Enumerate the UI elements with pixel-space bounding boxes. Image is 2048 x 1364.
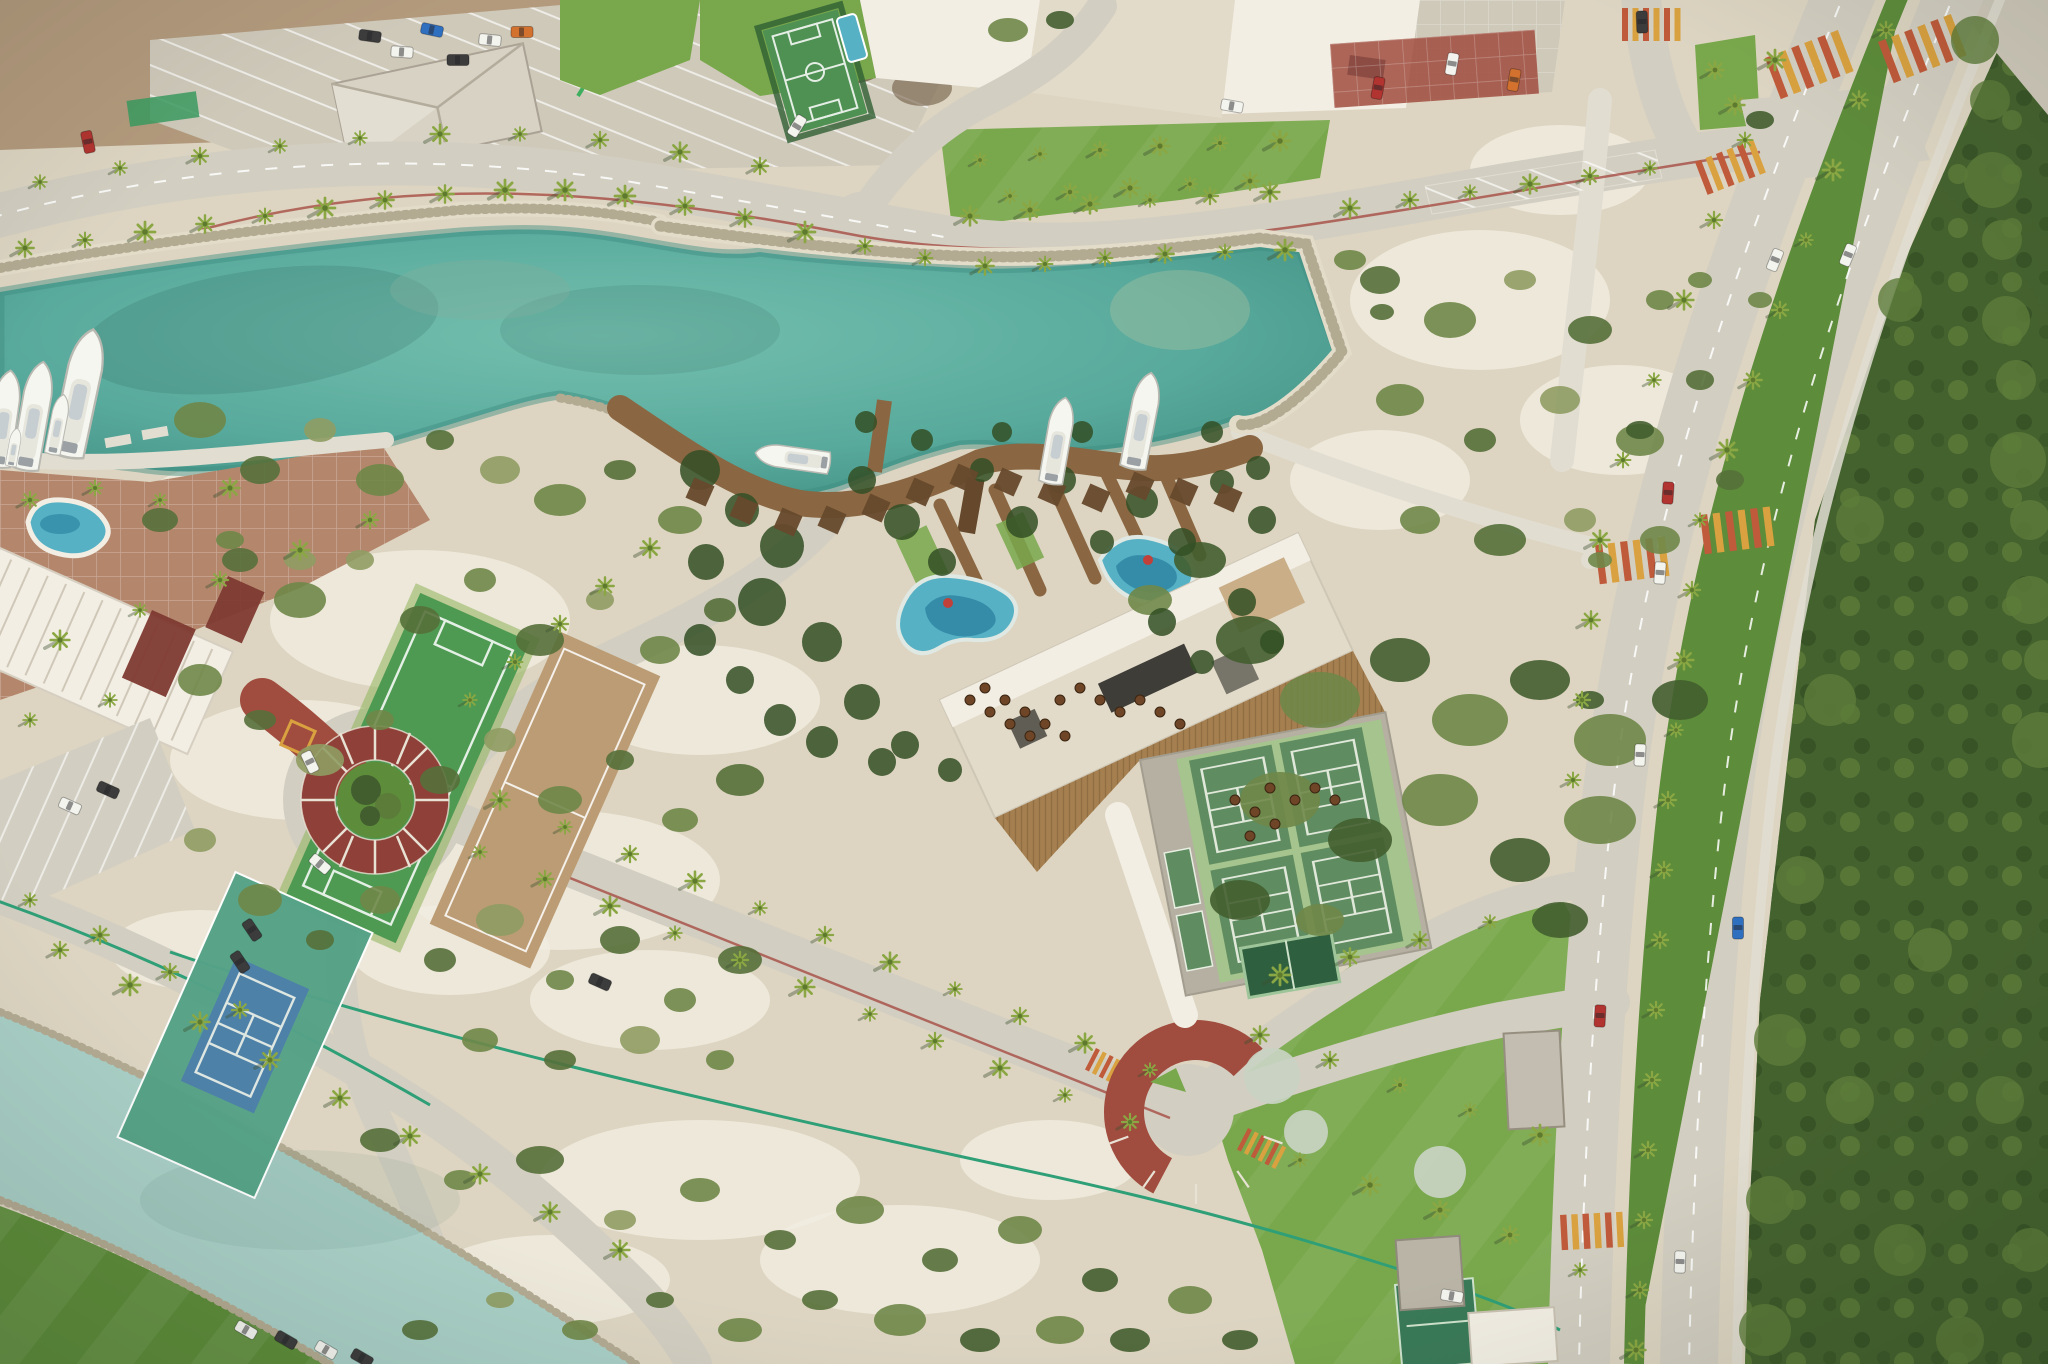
scrub-bush	[486, 1292, 514, 1308]
scrub-bush	[426, 430, 454, 450]
scrub-bush	[1376, 384, 1424, 416]
scrub-bush	[1748, 292, 1772, 308]
scrub-bush	[704, 598, 736, 622]
white-car	[1634, 744, 1646, 767]
garden-tree	[848, 466, 876, 494]
scrub-bush	[1688, 272, 1712, 288]
scrub-bush	[360, 886, 400, 914]
scrub-bush	[1370, 304, 1394, 320]
restaurant-table	[1330, 795, 1340, 805]
dark-car	[447, 55, 469, 66]
restaurant-table	[1020, 707, 1030, 717]
scrub-bush	[1564, 796, 1636, 844]
restaurant-table	[1055, 695, 1065, 705]
scrub-bush	[516, 1146, 564, 1174]
restaurant-table	[1230, 795, 1240, 805]
scrub-bush	[606, 750, 634, 770]
scrub-bush	[1046, 11, 1074, 29]
scrub-bush	[306, 930, 334, 950]
scrub-bush	[1640, 526, 1680, 554]
forest-canopy	[1996, 360, 2036, 400]
lawn-pavilion	[1504, 1031, 1565, 1130]
scrub-bush	[764, 1230, 796, 1250]
scrub-bush	[346, 550, 374, 570]
restaurant-table	[985, 707, 995, 717]
scrub-bush	[562, 1320, 598, 1340]
garden-tree	[1090, 530, 1114, 554]
scrub-bush	[1210, 880, 1270, 920]
pale-tree	[1414, 1146, 1466, 1198]
garden-tree	[1246, 456, 1270, 480]
shallow-patch	[390, 260, 570, 320]
scrub-bush	[240, 456, 280, 484]
scrub-bush	[640, 636, 680, 664]
scrub-bush	[1400, 506, 1440, 534]
garden-tree	[938, 758, 962, 782]
scrub-bush	[1424, 302, 1476, 338]
garden-tree	[1071, 421, 1093, 443]
red-umbrella	[1143, 555, 1153, 565]
scrub-bush	[420, 766, 460, 794]
scrub-bush	[184, 828, 216, 852]
scrub-bush	[620, 1026, 660, 1054]
scrub-bush	[400, 606, 440, 634]
forest-canopy	[1746, 1176, 1794, 1224]
dark-car	[358, 29, 381, 43]
scrub-bush	[706, 1050, 734, 1070]
scrub-bush	[1402, 774, 1478, 826]
scrub-bush	[1652, 680, 1708, 720]
forest-canopy	[1936, 1316, 1984, 1364]
scrub-bush	[1296, 904, 1344, 936]
garden-tree	[884, 504, 920, 540]
forest-canopy	[1982, 296, 2030, 344]
scrub-bush	[1540, 386, 1580, 414]
scrub-bush	[662, 808, 698, 832]
scrub-bush	[998, 1216, 1042, 1244]
orange-car	[511, 27, 533, 38]
forest-canopy	[1970, 80, 2010, 120]
scrub-bush	[718, 1318, 762, 1342]
restaurant-table	[1005, 719, 1015, 729]
forest-canopy	[1908, 928, 1952, 972]
garden-tree	[1201, 421, 1223, 443]
scrub-bush	[1334, 250, 1366, 270]
forest-canopy	[1804, 674, 1856, 726]
pale-tree	[1244, 1048, 1300, 1104]
restaurant-table	[1115, 707, 1125, 717]
scrub-bush	[402, 1320, 438, 1340]
scrub-bush	[1168, 1286, 1212, 1314]
garden-tree	[1168, 528, 1196, 556]
scrub-bush	[1222, 1330, 1258, 1350]
scrub-bush	[484, 728, 516, 752]
scrub-bush	[836, 1196, 884, 1224]
garden-tree	[1228, 588, 1256, 616]
red-car	[1594, 1005, 1606, 1028]
scrub-bush	[874, 1304, 926, 1336]
restaurant-table	[1060, 731, 1070, 741]
scrub-bush	[238, 884, 282, 916]
aerial-photo: Aerial drone photograph of a coastal res…	[0, 0, 2048, 1364]
garden-tree	[1006, 506, 1038, 538]
scrub-bush	[304, 418, 336, 442]
scrub-bush	[244, 710, 276, 730]
forest-canopy	[1826, 1076, 1874, 1124]
garden-tree	[992, 422, 1012, 442]
scrub-bush	[716, 764, 764, 796]
scrub-bush	[1510, 660, 1570, 700]
scrub-bush	[646, 1292, 674, 1308]
white-car	[391, 46, 414, 59]
restaurant-table	[1270, 819, 1280, 829]
scrub-bush	[600, 926, 640, 954]
garden-tree	[688, 544, 724, 580]
garden-tree	[868, 748, 896, 776]
blue-car	[1733, 917, 1744, 939]
scrub-bush	[1280, 672, 1360, 728]
scrub-bush	[1588, 552, 1612, 568]
forest-canopy	[1964, 152, 2020, 208]
scrub-bush	[476, 904, 524, 936]
scrub-bush	[1716, 470, 1744, 490]
scrub-bush	[658, 506, 702, 534]
scrub-bush	[1626, 421, 1654, 439]
forest-canopy	[1951, 16, 1999, 64]
scrub-bush	[546, 970, 574, 990]
garden-tree	[891, 731, 919, 759]
scrub-bush	[1328, 818, 1392, 862]
scrub-bush	[356, 464, 404, 496]
garden-tree	[928, 548, 956, 576]
scrub-bush	[604, 1210, 636, 1230]
dark-car	[1636, 11, 1648, 33]
shallow-patch	[1110, 270, 1250, 350]
restaurant-table	[1135, 695, 1145, 705]
small-building	[1468, 1307, 1558, 1364]
resort-pool	[28, 500, 108, 556]
scrub-bush	[142, 508, 178, 532]
scrub-bush	[1474, 524, 1526, 556]
scrub-bush	[604, 460, 636, 480]
garden-tree	[1248, 506, 1276, 534]
scrub-bush	[174, 402, 226, 438]
restaurant-table	[1245, 831, 1255, 841]
scrub-bush	[1432, 694, 1508, 746]
restaurant-table	[980, 683, 990, 693]
scrub-bush	[462, 1028, 498, 1052]
scrub-bush	[1370, 638, 1430, 682]
scrub-bush	[680, 1178, 720, 1202]
forest-canopy	[1982, 220, 2022, 260]
white-car	[478, 33, 501, 46]
scrub-bush	[1360, 266, 1400, 294]
scrub-bush	[1746, 111, 1774, 129]
scrub-bush	[424, 948, 456, 972]
restaurant-table	[1290, 795, 1300, 805]
scrub-bush	[664, 988, 696, 1012]
restaurant-table	[965, 695, 975, 705]
scrub-bush	[960, 1328, 1000, 1352]
garden-tree	[738, 578, 786, 626]
scrub-bush	[1532, 902, 1588, 938]
red-car	[1662, 482, 1675, 505]
scrub-bush	[464, 568, 496, 592]
scrub-bush	[1490, 838, 1550, 882]
garden-tree	[911, 429, 933, 451]
pale-tree	[1284, 1110, 1328, 1154]
scrub-bush	[534, 484, 586, 516]
scrub-bush	[274, 582, 326, 618]
scrub-bush	[516, 624, 564, 656]
scrub-bush	[1240, 772, 1320, 828]
garden-tree	[855, 411, 877, 433]
forest-canopy	[1976, 1076, 2024, 1124]
aerial-photo-stage: Aerial drone photograph of a coastal res…	[0, 0, 2048, 1364]
forest-canopy	[1754, 1014, 1806, 1066]
garden-tree	[1190, 650, 1214, 674]
scrub-bush	[360, 1128, 400, 1152]
forest-canopy	[1878, 278, 1922, 322]
restaurant-table	[1175, 719, 1185, 729]
garden-tree	[844, 684, 880, 720]
scrub-bush	[366, 710, 394, 730]
scrub-bush	[1568, 316, 1612, 344]
scrub-bush	[1464, 428, 1496, 452]
restaurant-table	[1000, 695, 1010, 705]
scrub-bush	[178, 664, 222, 696]
restaurant-table	[1310, 783, 1320, 793]
forest-canopy	[1776, 856, 1824, 904]
forest-canopy	[1739, 1304, 1791, 1356]
forest-canopy	[1990, 432, 2046, 488]
scrub-bush	[1504, 270, 1536, 290]
scrub-bush	[802, 1290, 838, 1310]
garden-tree	[802, 622, 842, 662]
scrub-bush	[922, 1248, 958, 1272]
scrub-bush	[216, 531, 244, 549]
scrub-bush	[544, 1050, 576, 1070]
restaurant-table	[1250, 807, 1260, 817]
restaurant-table	[1025, 731, 1035, 741]
garden-tree	[1148, 608, 1176, 636]
scrub-bush	[1686, 370, 1714, 390]
restaurant-table	[1155, 707, 1165, 717]
garden-tree	[806, 726, 838, 758]
garden-tree	[1260, 630, 1284, 654]
garden-tree	[684, 624, 716, 656]
garden-tree	[726, 666, 754, 694]
scrub-bush	[988, 18, 1028, 42]
scrub-bush	[1036, 1316, 1084, 1344]
white-car	[1674, 1251, 1686, 1273]
scrub-bush	[538, 786, 582, 814]
restaurant-table	[1040, 719, 1050, 729]
white-car	[1654, 562, 1667, 585]
scrub-bush	[222, 548, 258, 572]
restaurant-table	[1095, 695, 1105, 705]
red-umbrella	[943, 598, 953, 608]
restaurant-table	[1075, 683, 1085, 693]
scrub-bush	[1082, 1268, 1118, 1292]
scrub-bush	[1564, 508, 1596, 532]
garden-tree	[764, 704, 796, 736]
scrub-bush	[480, 456, 520, 484]
forest-canopy	[1874, 1224, 1926, 1276]
scrub-bush	[1110, 1328, 1150, 1352]
restaurant-table	[1265, 783, 1275, 793]
forest-canopy	[1836, 496, 1884, 544]
